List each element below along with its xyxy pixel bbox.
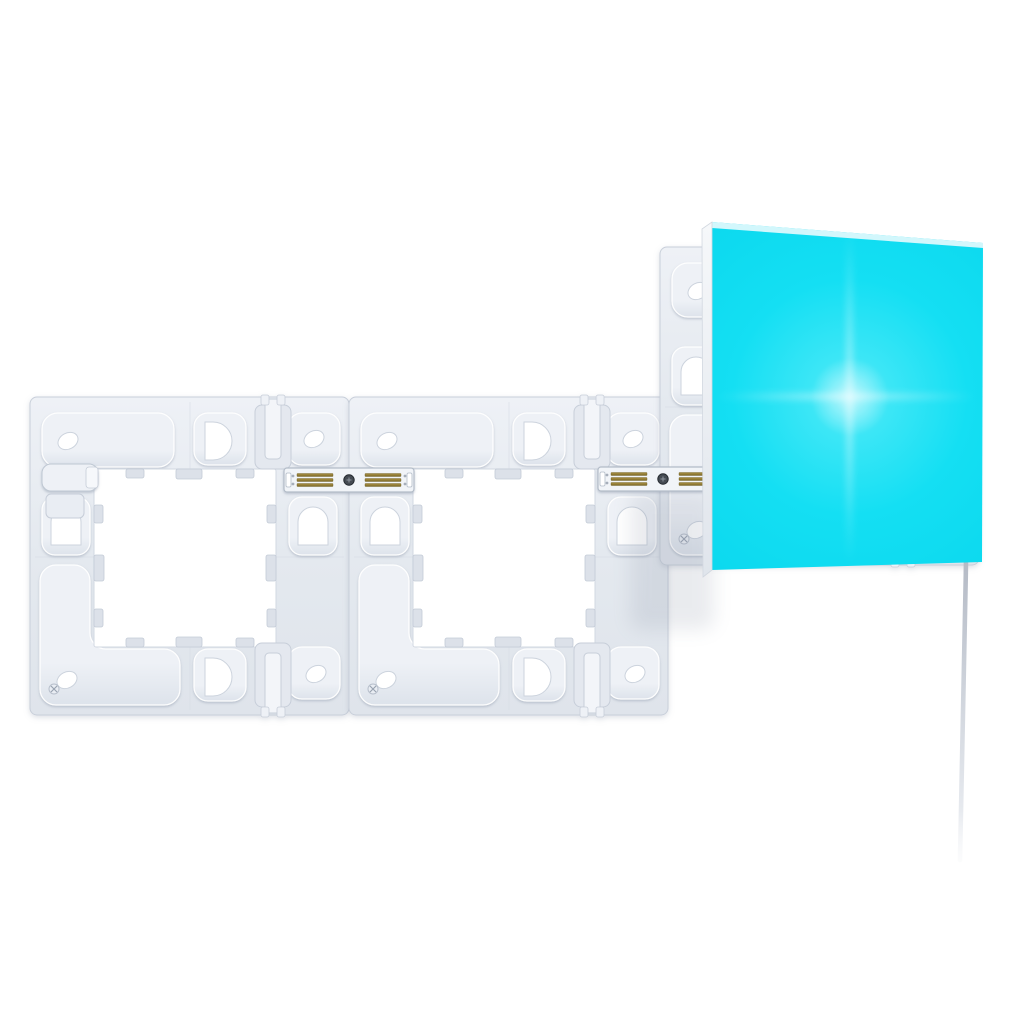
power-cable — [960, 558, 966, 860]
gold-contact-stripe — [365, 479, 401, 482]
panel-linker-1 — [284, 468, 414, 492]
mounting-clip-bottom — [255, 643, 291, 717]
mounting-clip-bottom — [574, 643, 610, 717]
light-panel-product-photo — [0, 0, 1024, 1024]
mounting-clip-top — [574, 395, 610, 469]
plate-center-opening — [413, 469, 595, 647]
gold-contact-stripe — [365, 474, 401, 477]
gold-contact-stripe — [611, 473, 647, 476]
mounting-plate-1 — [30, 395, 349, 717]
scene-canvas — [0, 0, 1024, 1024]
gold-contact-stripe — [297, 479, 333, 482]
mounting-plate-2 — [349, 395, 668, 717]
gold-contact-stripe — [365, 484, 401, 487]
plate-center-opening — [94, 469, 276, 647]
gold-contact-stripe — [611, 483, 647, 486]
illuminated-panel — [702, 222, 983, 577]
panel-side-edge — [702, 222, 712, 577]
gold-contact-stripe — [297, 484, 333, 487]
gold-contact-stripe — [297, 474, 333, 477]
mounting-clip-top — [255, 395, 291, 469]
gold-contact-stripe — [611, 478, 647, 481]
panel-center-glow — [795, 342, 905, 452]
panel-cast-shadow — [630, 492, 714, 630]
